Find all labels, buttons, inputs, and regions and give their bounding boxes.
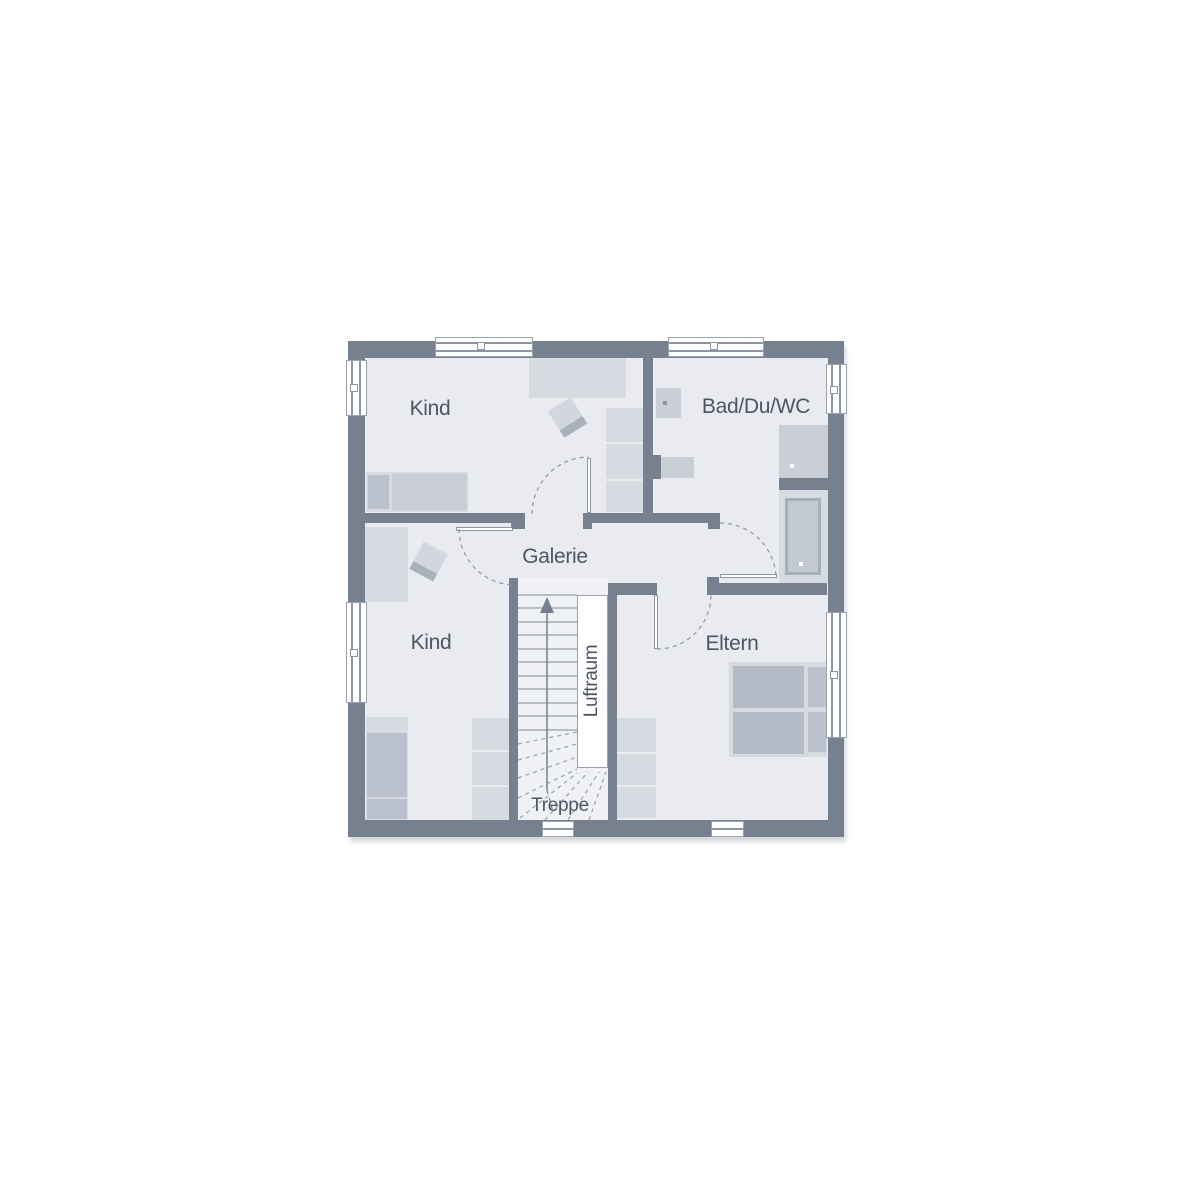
window-east-bad-tick <box>830 386 838 394</box>
door-leaf-kind-upper <box>587 458 591 513</box>
door-leaf-eltern <box>654 595 658 649</box>
shower-tray <box>779 425 828 478</box>
wall-bad-west <box>643 358 653 513</box>
window-south-treppe-bar <box>543 828 573 830</box>
window-east-eltern-bar2 <box>839 613 841 737</box>
bed-eltern-mattress1 <box>733 666 804 708</box>
window-west-kind-lower-tick <box>350 649 358 657</box>
wall-galerie-north-east <box>583 513 720 523</box>
bed-eltern-pillow1 <box>808 667 826 707</box>
window-north-kind-tick <box>477 342 485 350</box>
desk-kind-upper <box>529 358 626 398</box>
bed-kind-upper-mattress <box>392 474 467 510</box>
wall-step-eltern-jamb <box>707 577 719 583</box>
wardrobe-kind-lower-door1 <box>367 733 407 797</box>
shelf-kind-lower-3 <box>472 787 509 820</box>
shelf-kind-upper-1 <box>606 408 643 442</box>
door-leaf-bad <box>720 574 777 578</box>
washbasin-drain-dot <box>663 401 667 405</box>
window-north-kind-bar2 <box>436 350 532 352</box>
shelf-kind-upper-2 <box>606 444 643 479</box>
area-label-treppe: Treppe <box>531 795 589 817</box>
shelf-kind-upper-3 <box>606 481 643 512</box>
wall-shower-tub-divider <box>779 478 828 490</box>
wc <box>661 457 694 478</box>
wall-stairwell-east <box>608 593 617 820</box>
room-label-bad-du-wc: Bad/Du/WC <box>702 395 810 419</box>
area-label-galerie: Galerie <box>522 545 588 569</box>
shelf-kind-lower-1 <box>472 718 509 750</box>
shelf-kind-lower-2 <box>472 752 509 785</box>
window-north-bad-bar2 <box>669 350 763 352</box>
window-west-kind-upper-bar2 <box>359 361 361 415</box>
wardrobe-eltern-2 <box>617 754 656 785</box>
window-east-bad-bar2 <box>839 365 841 413</box>
area-label-luftraum: Luftraum <box>581 645 603 718</box>
bed-eltern-mattress2 <box>733 712 804 754</box>
wall-stairwell-west <box>509 578 518 820</box>
window-north-bad-tick <box>710 342 718 350</box>
wall-step-kind-lower-jamb <box>511 523 525 529</box>
room-label-eltern: Eltern <box>705 632 758 656</box>
washbasin <box>656 388 681 418</box>
wardrobe-eltern-3 <box>617 787 656 818</box>
wardrobe-eltern-1 <box>617 718 656 752</box>
window-east-eltern-tick <box>830 671 838 679</box>
room-label-kind-upper: Kind <box>410 397 451 421</box>
wall-eltern-north-west <box>608 583 657 595</box>
wall-eltern-north-east <box>707 583 827 595</box>
wall-galerie-north-west <box>365 513 525 523</box>
wardrobe-kind-lower-door2 <box>367 799 407 819</box>
shower-drain-dot <box>790 464 794 468</box>
bed-kind-lower <box>365 527 408 602</box>
bathtub-basin <box>788 501 818 572</box>
window-west-kind-lower-bar2 <box>359 603 361 702</box>
room-label-kind-lower: Kind <box>411 631 452 655</box>
bed-kind-upper-pillow <box>368 475 389 509</box>
wall-step-kind-upper-jamb <box>583 523 592 529</box>
wall-step-bad-jamb <box>708 523 720 529</box>
door-leaf-kind-lower <box>456 527 513 531</box>
bed-eltern-pillow2 <box>808 712 826 752</box>
floor-plan-page: KindBad/Du/WCGalerieKindElternLuftraumTr… <box>0 0 1200 1200</box>
window-west-kind-upper-tick <box>350 384 358 392</box>
wall-pier-wc <box>644 455 661 479</box>
bathtub-drain-dot <box>799 562 803 566</box>
window-south-eltern-bar <box>712 828 743 830</box>
